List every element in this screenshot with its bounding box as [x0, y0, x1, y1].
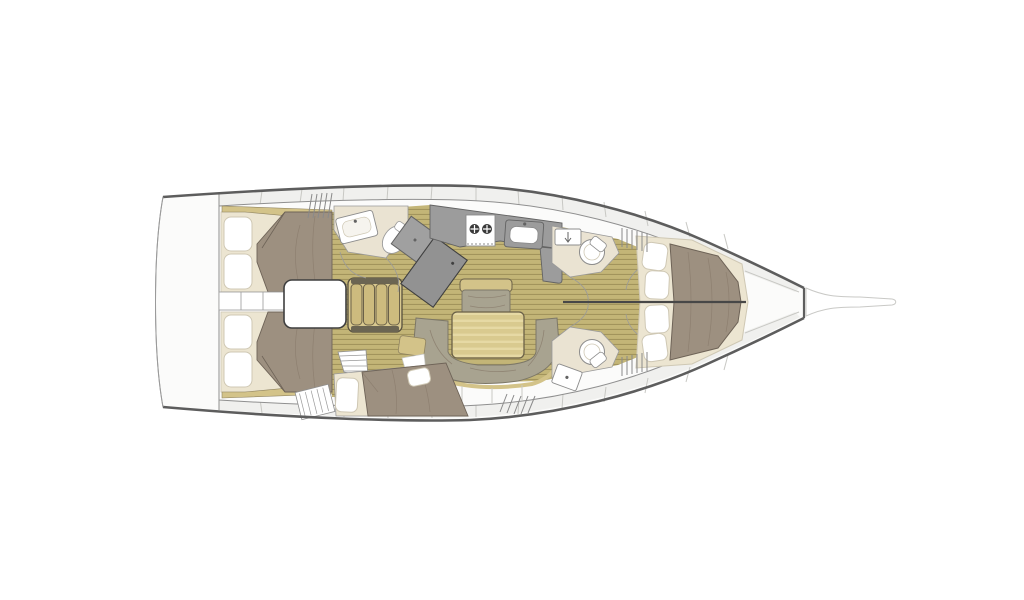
aft-port-pillow-1: [224, 217, 252, 251]
cockpit-well-band: [219, 292, 289, 310]
fwd-pillow-4: [641, 332, 669, 362]
fwd-pillow-2: [644, 270, 669, 299]
bowsprit: [806, 288, 896, 316]
salon-table: [452, 312, 524, 358]
stair-tread-1: [351, 284, 362, 325]
salon-step: [398, 335, 426, 356]
boat-interior-plan: [0, 0, 1024, 600]
aft-stbd-pillow-1: [224, 315, 252, 349]
aft-cabin-port: [221, 206, 332, 292]
mid-cabin-pillow-1: [335, 377, 359, 412]
fwd-pillow-3: [644, 304, 669, 333]
stair-tread-2: [364, 284, 375, 325]
fwd-pillow-1: [641, 241, 669, 271]
engine-box: [284, 280, 346, 328]
stove-burner-right: [482, 224, 492, 234]
stair-tread-4: [389, 284, 400, 325]
stair-tread-3: [376, 284, 387, 325]
stove-burner-left: [470, 224, 480, 234]
aft-stbd-pillow-2: [224, 352, 252, 387]
companionway-stairs: [348, 278, 402, 332]
salon-bench-cushion: [462, 290, 510, 314]
galley-sink: [504, 220, 544, 250]
aft-port-pillow-2: [224, 254, 252, 289]
boat-plan-svg: [0, 0, 1024, 600]
